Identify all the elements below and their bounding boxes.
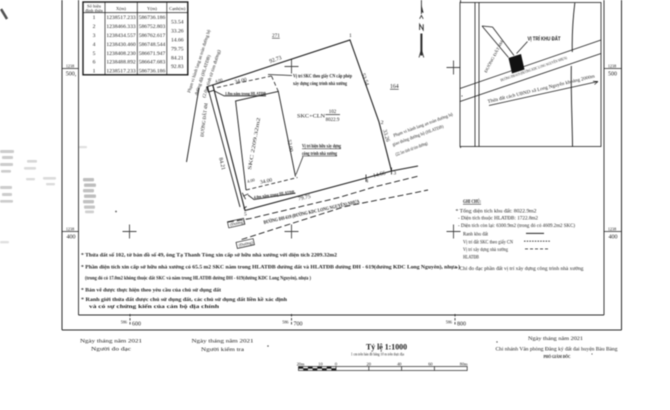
svg-text:SKC+CLN: SKC+CLN: [297, 114, 325, 120]
svg-text:Cạnh(m): Cạnh(m): [169, 6, 186, 11]
svg-text:1238430.460: 1238430.460: [106, 42, 136, 48]
svg-text:271: 271: [272, 33, 280, 39]
svg-text:* Chỉ đo đạc phần đất vị trí x: * Chỉ đo đạc phần đất vị trí xây dựng cô…: [456, 265, 584, 272]
svg-text:* Thửa đất số 102, tờ bản đồ s: * Thửa đất số 102, tờ bản đồ số 49, ông …: [81, 252, 337, 259]
svg-text:- Diện tích còn lại: 6300.9m2: - Diện tích còn lại: 6300.9m2 (trong đó …: [458, 222, 575, 229]
svg-text:20m: 20m: [297, 361, 305, 366]
svg-text:(trong đó có 17.0m2 không thuộ: (trong đó có 17.0m2 không thuộc đất SKC …: [85, 275, 311, 282]
svg-text:và có sự chứng kiến của cán bộ: và có sự chứng kiến của cán bộ địa chính: [89, 303, 220, 310]
svg-text:700: 700: [294, 322, 303, 328]
svg-text:Ngày tháng năm 2021: Ngày tháng năm 2021: [192, 340, 255, 345]
svg-text:* Phần diện tích xin cấp sở hữ: * Phần diện tích xin cấp sở hữu nhà xưởn…: [81, 264, 460, 271]
svg-text:500,: 500,: [66, 72, 77, 78]
svg-text:công trình nhà xưởng: công trình nhà xưởng: [302, 152, 337, 157]
svg-text:400: 400: [67, 235, 76, 241]
svg-text:Ngày tháng năm 2021: Ngày tháng năm 2021: [528, 337, 584, 342]
svg-text:HLATĐB: HLATĐB: [463, 255, 479, 261]
svg-text:84.21: 84.21: [171, 55, 184, 61]
svg-text:1: 1: [349, 33, 352, 39]
svg-text:3: 3: [93, 33, 96, 39]
svg-text:xây dựng công trình nhà xưởng: xây dựng công trình nhà xưởng: [293, 82, 347, 87]
svg-text:đỉnh thửa: đỉnh thửa: [85, 8, 102, 13]
svg-text:14.66: 14.66: [171, 38, 184, 44]
svg-text:GHI CHÚ:: GHI CHÚ:: [463, 197, 481, 205]
svg-text:1238466.333: 1238466.333: [106, 24, 136, 30]
svg-text:1238: 1238: [608, 64, 616, 69]
svg-text:Tỷ lệ 1:1000: Tỷ lệ 1:1000: [366, 342, 407, 352]
svg-text:X(m): X(m): [116, 6, 126, 11]
svg-text:586: 586: [121, 320, 127, 325]
svg-text:586748.544: 586748.544: [139, 42, 166, 48]
svg-text:Người đo đạc: Người đo đạc: [91, 348, 132, 353]
svg-text:Người kiểm tra: Người kiểm tra: [201, 347, 245, 353]
svg-text:Ngày tháng năm 2021: Ngày tháng năm 2021: [80, 340, 143, 345]
svg-text:Vị trí hiện hữu xây dựng: Vị trí hiện hữu xây dựng: [302, 145, 341, 150]
svg-text:Ranh khu đất: Ranh khu đất: [463, 231, 488, 238]
svg-text:586736.186: 586736.186: [139, 69, 166, 75]
svg-text:92.83: 92.83: [171, 64, 184, 70]
svg-text:Vị trí SKC theo giấy CN cấp ph: Vị trí SKC theo giấy CN cấp phép: [293, 75, 352, 80]
svg-text:1238: 1238: [66, 227, 74, 232]
svg-text:80m: 80m: [460, 361, 468, 366]
svg-text:Chi nhánh Văn phòng Đăng ký đấ: Chi nhánh Văn phòng Đăng ký đất đai huyệ…: [496, 348, 619, 353]
svg-text:Y(m): Y(m): [147, 6, 157, 11]
svg-text:6: 6: [93, 60, 96, 66]
svg-text:164: 164: [390, 84, 399, 90]
svg-text:600: 600: [132, 322, 141, 328]
svg-text:Vị trí đất SKC theo giấy CN: Vị trí đất SKC theo giấy CN: [463, 238, 513, 245]
svg-text:586671.947: 586671.947: [139, 51, 166, 57]
svg-text:2: 2: [381, 120, 384, 126]
svg-text:1238: 1238: [66, 64, 74, 69]
svg-text:1238488.892: 1238488.892: [106, 60, 136, 66]
svg-text:586736.186: 586736.186: [139, 15, 166, 21]
svg-text:PHÓ GIÁM ĐỐC: PHÓ GIÁM ĐỐC: [544, 354, 571, 359]
svg-text:1238408.230: 1238408.230: [106, 51, 136, 57]
svg-text:- Diện tích thuộc HLATĐB: 1722: - Diện tích thuộc HLATĐB: 1722.8m2: [458, 216, 538, 222]
svg-text:1: 1: [93, 15, 96, 21]
svg-text:1238517.233: 1238517.233: [106, 69, 136, 75]
svg-text:1238517.233: 1238517.233: [106, 15, 136, 21]
svg-text:1: 1: [93, 69, 96, 75]
svg-text:586647.683: 586647.683: [139, 60, 166, 66]
svg-text:Vị trí xây dựng nhà xưởng: Vị trí xây dựng nhà xưởng: [463, 247, 508, 253]
svg-text:8022.9: 8022.9: [326, 118, 340, 123]
svg-text:5: 5: [93, 51, 96, 57]
svg-text:79.75: 79.75: [171, 46, 184, 52]
svg-text:* Bản vẽ được thực hiện theo y: * Bản vẽ được thực hiện theo yêu cầu của…: [81, 287, 221, 294]
svg-text:800: 800: [457, 322, 466, 328]
svg-text:2: 2: [93, 24, 96, 30]
svg-text:* Tổng diện tích khu đất: 8022: * Tổng diện tích khu đất: 8022.9m2: [456, 208, 537, 215]
svg-text:33.26: 33.26: [171, 29, 184, 35]
svg-text:3: 3: [393, 171, 396, 177]
svg-text:1238434.557: 1238434.557: [106, 33, 136, 39]
svg-text:586762.617: 586762.617: [139, 33, 166, 39]
svg-text:53.54: 53.54: [171, 20, 184, 26]
svg-text:4: 4: [93, 42, 96, 48]
svg-text:VỊ TRÍ KHU ĐẤT: VỊ TRÍ KHU ĐẤT: [528, 35, 561, 43]
svg-text:500: 500: [608, 72, 617, 78]
svg-text:1 cm trên bản đồ bằng 10 m trê: 1 cm trên bản đồ bằng 10 m trên thực địa: [351, 352, 404, 357]
svg-text:586752.803: 586752.803: [139, 24, 166, 30]
svg-text:1238: 1238: [608, 227, 616, 232]
svg-text:400: 400: [609, 235, 618, 241]
svg-text:586: 586: [446, 320, 452, 325]
svg-text:1.8m nằm trong HLATĐB: 1.8m nằm trong HLATĐB: [225, 91, 266, 96]
svg-text:586: 586: [282, 320, 288, 325]
svg-text:* Ranh giới thửa đất được chủ: * Ranh giới thửa đất được chủ sử dụng đấ…: [81, 296, 288, 303]
svg-text:5: 5: [244, 212, 247, 218]
